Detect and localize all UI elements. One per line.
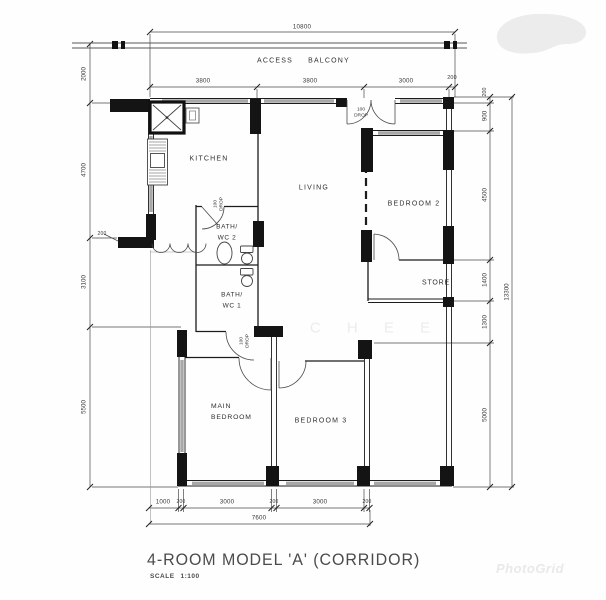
refuse-chute-icon [150,102,199,133]
dim-right-4500: 4500 [482,188,489,202]
dim-left-2000: 2000 [81,67,88,81]
dim-left-5500: 5500 [81,400,88,414]
dim-right-1400: 1400 [482,273,489,287]
dim-right-5000: 5000 [482,408,489,422]
balcony-walls [72,41,467,49]
dim-bottom-total: 7600 [252,515,267,522]
access-balcony-label-balcony: BALCONY [308,58,350,65]
smudge-blob [497,14,586,54]
room-label-bedroom3: BEDROOM 3 [295,418,348,425]
scale-value: 1:100 [181,573,200,580]
dim-bottom-seg-5: 3000 [313,499,328,506]
bath-wc2-line2: WC 2 [216,233,238,244]
dim-bottom-seg-6: 200 [363,499,372,505]
bath-wc1-line2: WC 1 [221,301,243,312]
scale-label: SCALE [150,573,175,580]
bath-wc2-line1: BATH/ [216,223,238,234]
dim-right-200: 200 [482,88,488,97]
plan-title: 4-ROOM MODEL 'A' (CORRIDOR) [147,550,420,570]
dim-top-total: 10800 [293,24,311,31]
dim-left-3100: 3100 [81,275,88,289]
main-bedroom-line2: BEDROOM [211,412,252,423]
dim-right-900: 900 [482,111,489,121]
service-folding-door [152,244,206,253]
room-label-store: STORE [422,280,450,287]
dim-right-total: 13300 [504,283,511,300]
dim-bottom-seg-1: 1000 [156,499,171,506]
kitchen-counter-icon [148,139,168,185]
dim-left-4700: 4700 [81,163,88,177]
dim-bottom-seg-2: 200 [177,499,186,505]
room-label-main-bedroom: MAIN BEDROOM [211,401,252,423]
drop-wc2-line2: DROP [219,197,225,211]
wc1-toilet-icon [242,276,253,287]
dim-top-seg-4: 200 [447,75,457,81]
wc2-toilet-icon [242,253,253,264]
plan-scale: SCALE1:100 [150,573,206,580]
drop-note-wc2: 100 DROP [213,197,224,211]
drop-wc1-line2: DROP [245,334,251,348]
dim-stub-200: 200 [98,231,107,237]
room-label-bath-wc1: BATH/ WC 1 [221,291,243,312]
drop-entrance-line2: DROP [354,113,368,119]
drop-note-wc1: 100 DROP [239,334,250,348]
main-bedroom-line1: MAIN [211,401,252,412]
dim-bottom-seg-4: 200 [270,499,279,505]
dim-top-seg-3: 3000 [399,78,414,85]
dim-top-seg-2: 3800 [303,78,318,85]
bedroom3-door [279,361,306,388]
wc2-basin-icon [217,242,232,264]
wc2-cistern-icon [241,246,254,253]
dim-bottom-seg-3: 3000 [220,499,235,506]
drop-note-entrance: 100 DROP [354,107,368,118]
room-label-bedroom2: BEDROOM 2 [388,201,441,208]
floor-plan-canvas: ACCESS BALCONY KITCHEN LIVING BEDROOM 2 … [0,0,606,600]
bedroom2-door [374,234,399,260]
access-balcony-label-access: ACCESS [257,58,293,65]
watermark-photogrid: PhotoGrid [496,561,564,576]
floor-plan-drawing [0,0,606,600]
bath-wc1-line1: BATH/ [221,291,243,302]
main-bedroom-door [239,358,271,390]
wc1-cistern-icon [241,269,254,276]
dim-top-seg-1: 3800 [196,78,211,85]
dim-right-1300: 1300 [482,315,489,329]
entrance-door-right [371,100,395,124]
bath-fixtures [217,242,253,287]
room-label-living: LIVING [299,185,329,192]
room-label-bath-wc2: BATH/ WC 2 [216,223,238,244]
room-label-kitchen: KITCHEN [189,156,228,163]
watermark-chee: C H E E [310,320,434,337]
